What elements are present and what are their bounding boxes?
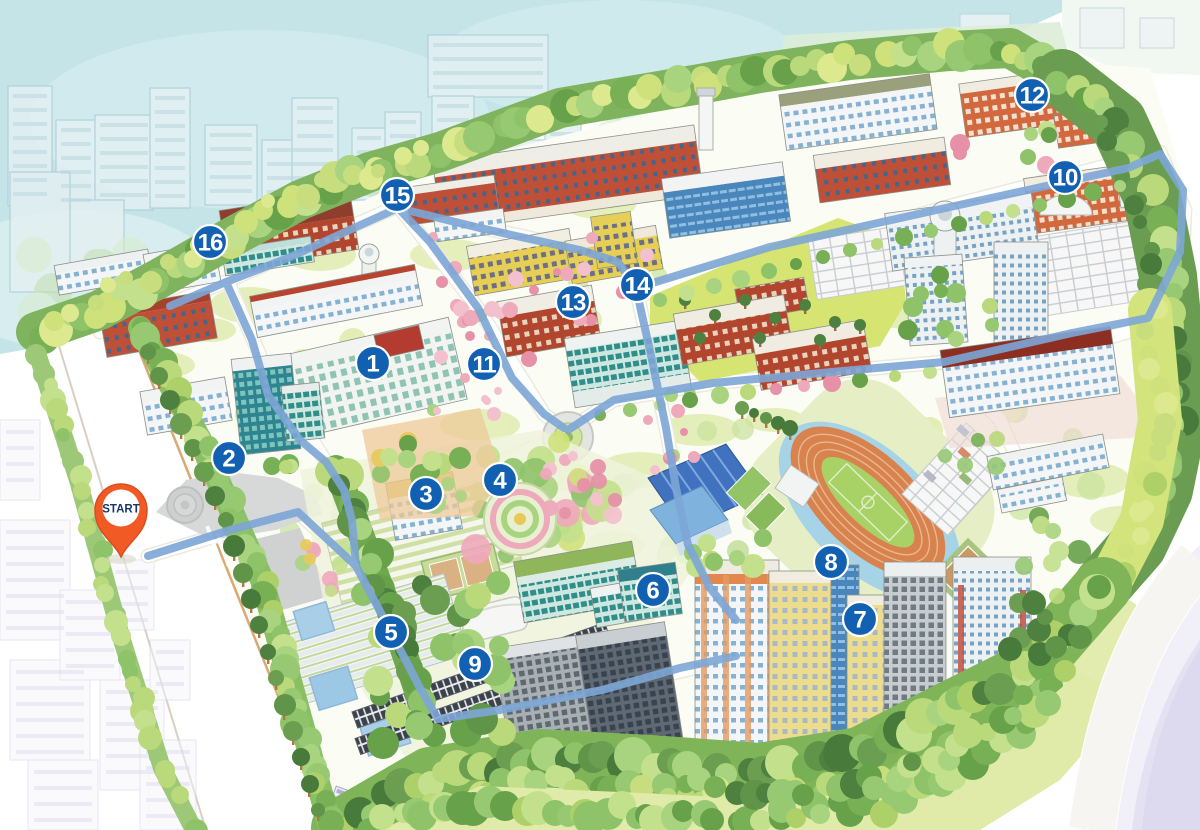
svg-text:4: 4 [493, 468, 507, 495]
svg-text:14: 14 [625, 273, 651, 300]
svg-text:13: 13 [561, 290, 586, 317]
svg-text:3: 3 [419, 482, 432, 509]
svg-text:7: 7 [853, 607, 866, 634]
svg-text:START: START [102, 504, 139, 516]
svg-text:12: 12 [1020, 83, 1045, 110]
svg-text:8: 8 [824, 550, 837, 577]
svg-text:15: 15 [385, 183, 410, 210]
svg-text:11: 11 [472, 352, 496, 379]
svg-text:10: 10 [1053, 165, 1078, 192]
svg-text:5: 5 [384, 620, 397, 647]
svg-text:2: 2 [222, 446, 235, 473]
svg-text:6: 6 [646, 578, 659, 605]
svg-text:1: 1 [366, 351, 379, 378]
svg-text:9: 9 [468, 652, 481, 679]
svg-text:16: 16 [198, 230, 223, 257]
